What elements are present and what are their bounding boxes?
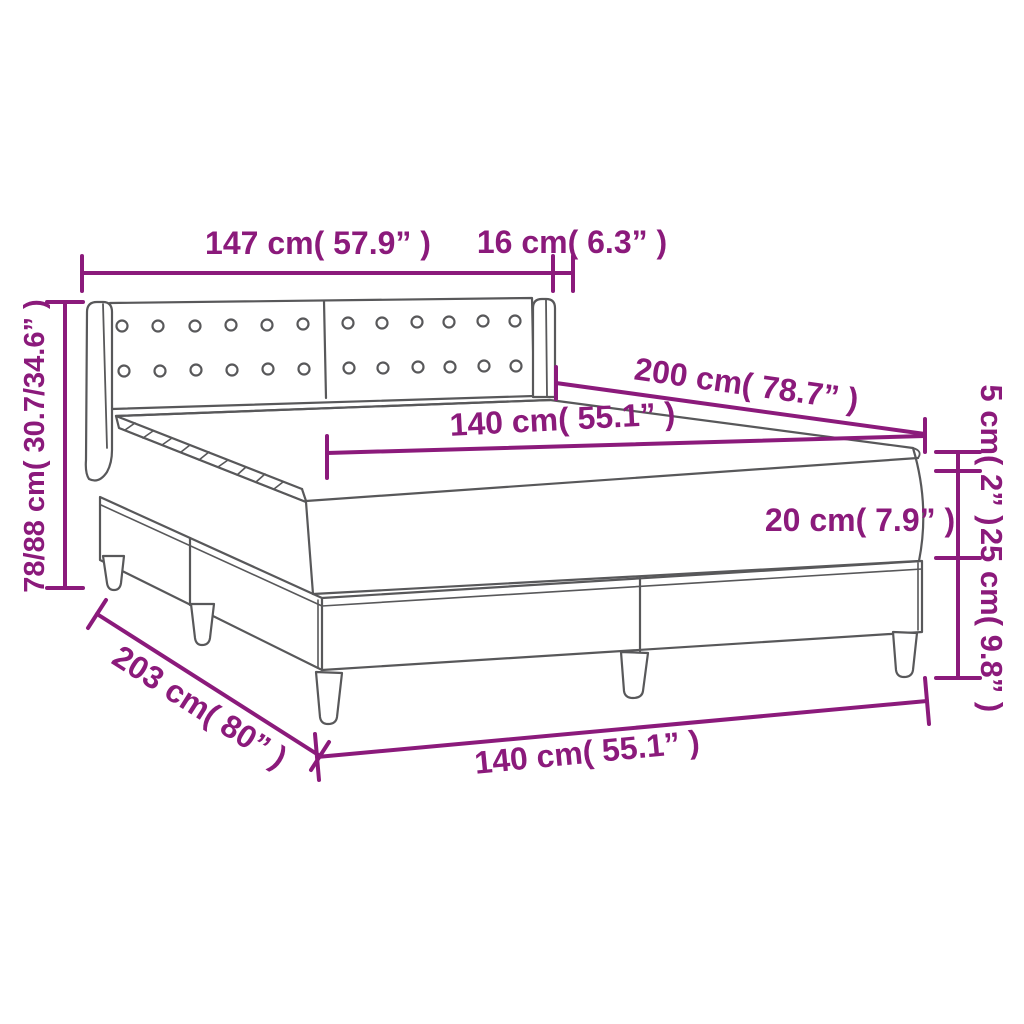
topper-height-label: 5 cm( 2” ) <box>974 384 1009 525</box>
headboard-height-label: 78/88 cm( 30.7/34.6” ) <box>19 299 51 592</box>
left-wing <box>86 302 112 480</box>
leg-front-middle <box>621 652 648 698</box>
headboard <box>110 298 534 409</box>
bed-dimension-drawing: 147 cm( 57.9” ) 16 cm( 6.3” ) 78/88 cm( … <box>0 0 1024 1024</box>
leg-front-corner <box>316 672 342 724</box>
headboard-width-label: 147 cm( 57.9” ) <box>205 225 431 261</box>
leg-mid-left <box>191 604 214 645</box>
leg-front-right <box>893 632 917 677</box>
dim-heights-line <box>936 452 980 678</box>
right-wing <box>533 299 555 397</box>
leg-back-left <box>103 556 124 590</box>
dimension-diagram: 147 cm( 57.9” ) 16 cm( 6.3” ) 78/88 cm( … <box>0 0 1024 1024</box>
base-height-label: 25 cm( 9.8” ) <box>974 528 1009 712</box>
base-length-label: 203 cm( 80” ) <box>106 638 293 775</box>
dim-headboard-height-line <box>47 302 83 588</box>
mattress-height-label: 20 cm( 7.9” ) <box>765 502 955 538</box>
wing-depth-label: 16 cm( 6.3” ) <box>477 224 667 260</box>
dim-headboard-width-line <box>82 256 573 291</box>
